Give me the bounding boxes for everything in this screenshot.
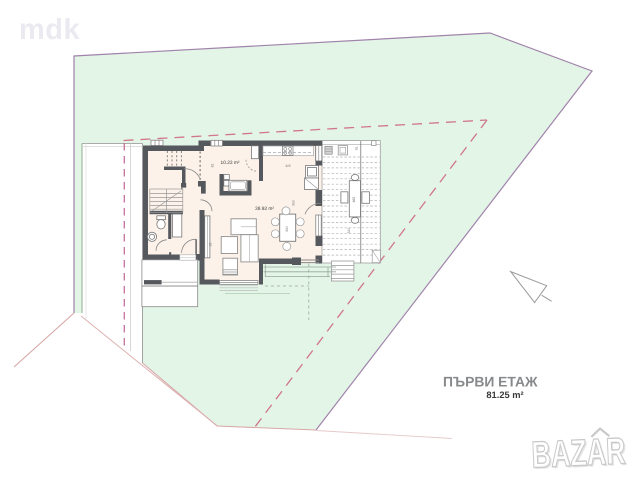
svg-text:BAZAR: BAZAR <box>531 431 627 477</box>
svg-text:10.23 m²: 10.23 m² <box>221 160 240 166</box>
svg-text:82: 82 <box>211 164 215 168</box>
svg-text:75: 75 <box>355 147 359 151</box>
svg-text:660: 660 <box>285 226 289 232</box>
svg-text:52: 52 <box>209 243 213 247</box>
svg-text:860: 860 <box>292 200 296 206</box>
svg-text:38.92 m²: 38.92 m² <box>255 206 274 212</box>
svg-text:81.25 m²: 81.25 m² <box>486 390 523 400</box>
svg-text:325: 325 <box>285 164 291 168</box>
svg-text:ПЪРВИ ЕТАЖ: ПЪРВИ ЕТАЖ <box>443 374 538 390</box>
svg-text:665: 665 <box>352 197 356 203</box>
svg-text:310: 310 <box>347 228 351 234</box>
svg-text:mdk: mdk <box>19 14 81 46</box>
